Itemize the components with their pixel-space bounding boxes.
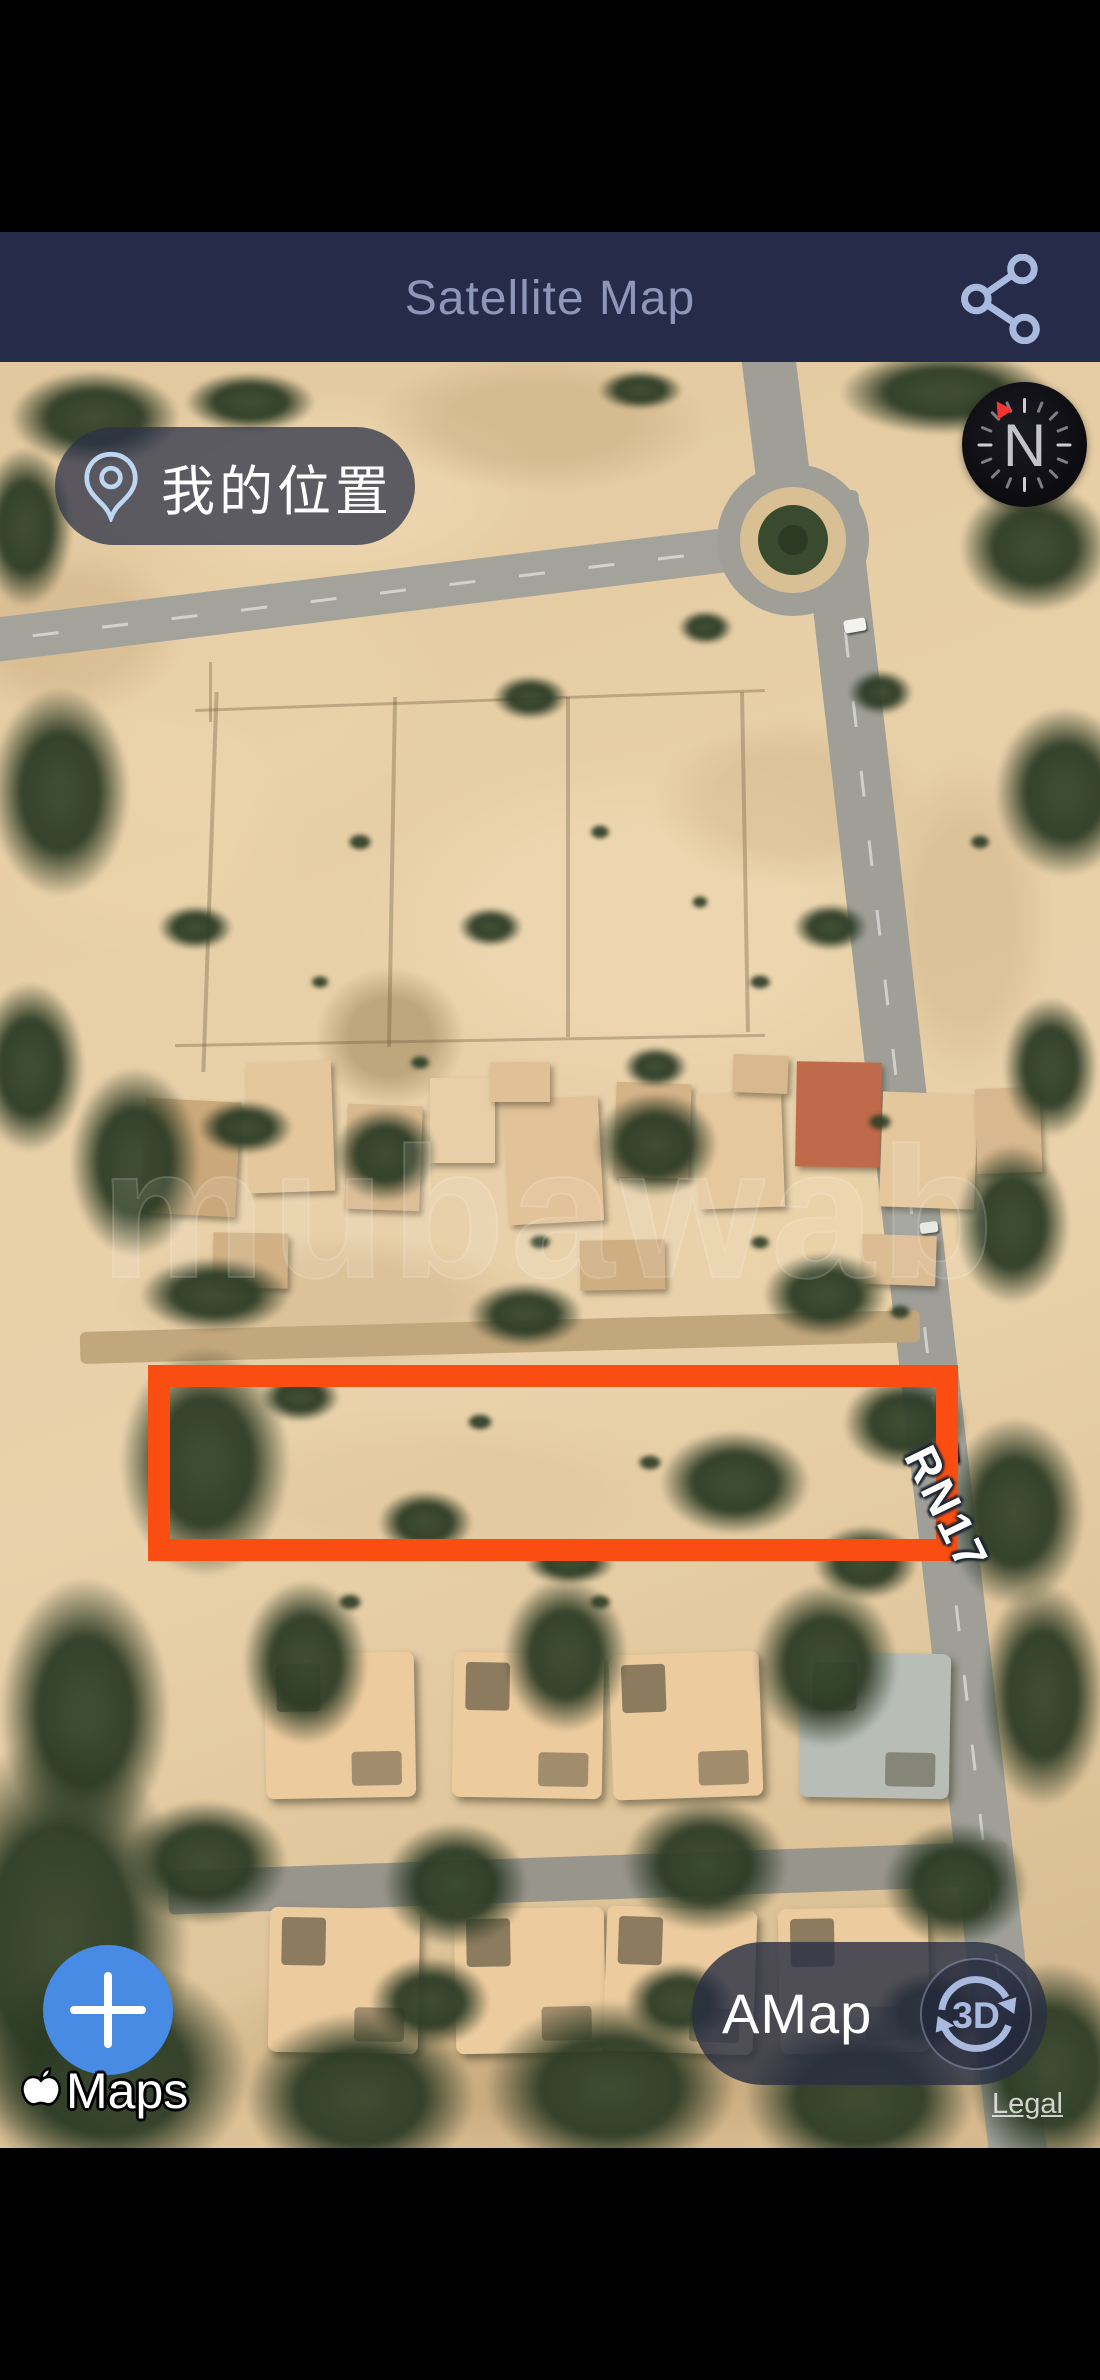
vegetation [458,907,523,947]
vegetation [468,1282,583,1347]
vegetation [337,1593,363,1611]
village-house [795,1061,882,1167]
amap-button[interactable]: AMap 3D [692,1942,1047,2085]
page-title: Satellite Map [0,232,1100,362]
my-location-button[interactable]: 我的位置 [55,427,415,545]
vegetation [333,1107,438,1202]
compass[interactable]: N [962,382,1087,507]
field-line [566,697,570,1037]
villa [609,1650,764,1800]
vegetation [623,1797,788,1932]
vegetation [158,905,233,950]
vegetation [0,982,85,1152]
villa-shadow-detail [351,1750,402,1785]
vegetation [70,1067,200,1257]
bottom-letterbox [0,2148,1100,2380]
amap-label: AMap [722,1981,872,2046]
field-line [209,662,212,722]
village-house [732,1054,788,1094]
vegetation [763,1252,888,1337]
legal-link[interactable]: Legal [992,2088,1063,2121]
vegetation [140,1257,290,1332]
village-house [430,1078,495,1163]
villa-shadow-detail [698,1749,749,1785]
vehicle [919,1220,938,1233]
satellite-map[interactable]: mubawab RN17 我的位置 N [0,362,1100,2148]
village-house [579,1239,665,1290]
apple-maps-attribution: Maps [14,2062,188,2120]
vegetation [198,1100,293,1155]
vegetation [383,1822,528,1947]
vegetation [793,903,868,951]
vegetation [980,1582,1100,1807]
share-button[interactable] [958,254,1044,344]
navbar: Satellite Map [0,232,1100,362]
phone-screen: Satellite Map mubawab RN17 我的位置 [0,0,1100,2380]
highlighted-plot-rectangle [148,1365,958,1561]
village-house [490,1062,550,1102]
maps-attribution-label: Maps [66,2062,188,2120]
vegetation [598,370,683,410]
compass-letter: N [962,382,1087,507]
vegetation [848,670,913,715]
village-house [502,1095,603,1225]
my-location-label: 我的位置 [161,447,393,526]
threed-label: 3D [952,1993,1000,2035]
vegetation [593,1092,718,1197]
villa-shadow-detail [885,1752,936,1787]
villa-courtyard [281,1916,326,1965]
vegetation [753,1582,898,1747]
share-icon [958,254,1044,344]
roundabout [778,525,808,555]
villa-courtyard [621,1663,667,1713]
location-pin-icon [83,450,139,522]
apple-logo-icon [14,2063,66,2119]
road [167,1841,1008,1914]
vegetation [955,1144,1070,1304]
3d-rotate-icon: 3D [917,1955,1035,2073]
top-letterbox [0,0,1100,232]
vegetation [493,675,568,720]
vegetation [678,610,733,645]
vegetation [1003,997,1098,1137]
villa-courtyard [618,1915,664,1965]
vegetation [623,1046,688,1088]
villa-shadow-detail [538,1752,589,1787]
vegetation [749,1235,771,1250]
zoom-in-button[interactable] [43,1945,173,2075]
vegetation [883,1822,1028,1947]
vegetation [409,1055,431,1070]
plus-icon-vertical [104,1972,112,2048]
